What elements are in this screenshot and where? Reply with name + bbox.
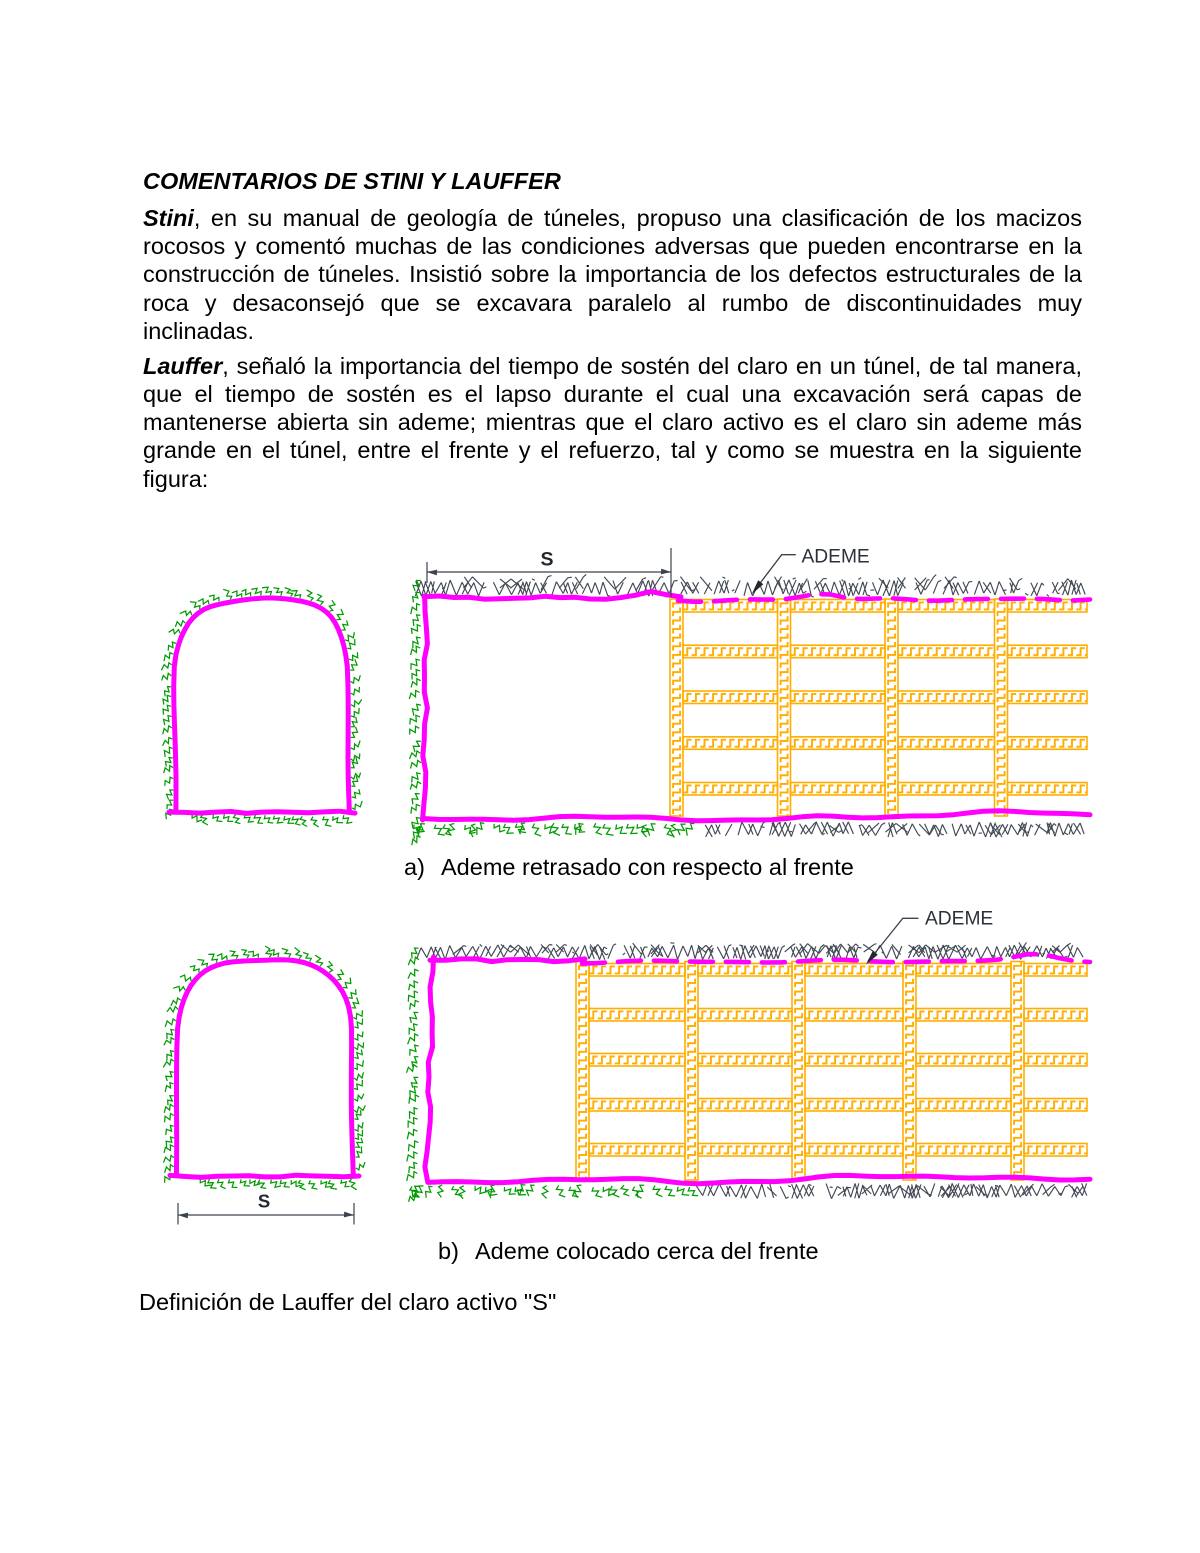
svg-text:S: S — [258, 1191, 270, 1212]
svg-text:ADEME: ADEME — [802, 547, 870, 568]
svg-text:S: S — [540, 549, 553, 571]
svg-text:ADEME: ADEME — [925, 908, 993, 929]
